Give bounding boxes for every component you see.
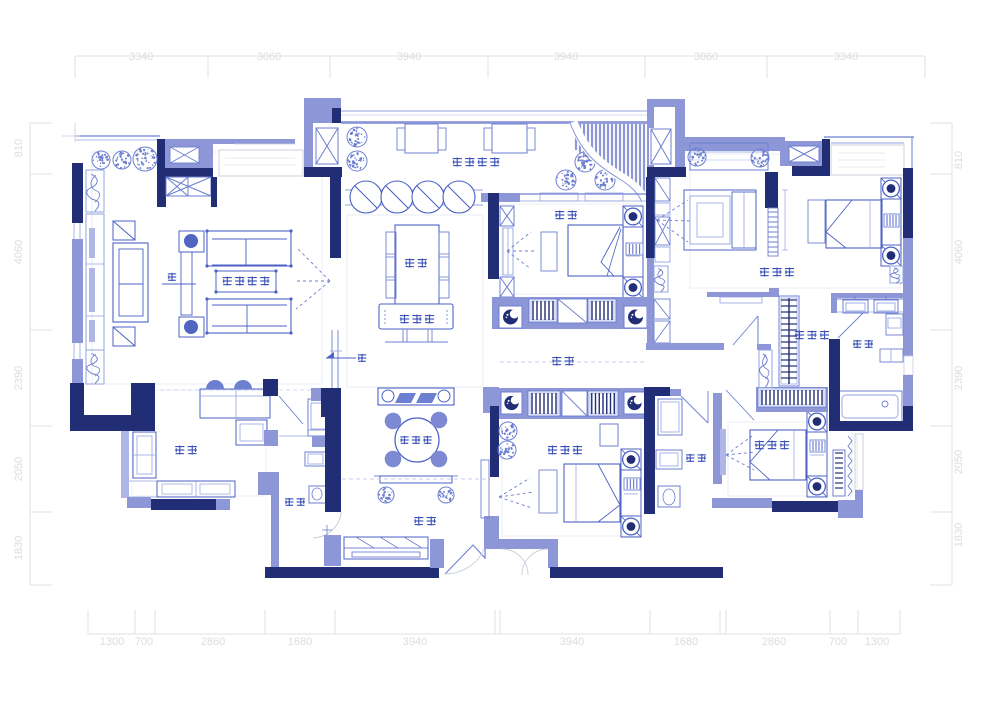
- svg-text:1300: 1300: [100, 636, 124, 648]
- svg-text:2390: 2390: [13, 366, 25, 390]
- svg-text:4060: 4060: [13, 240, 25, 264]
- svg-text:2050: 2050: [13, 457, 25, 481]
- svg-text:700: 700: [135, 636, 153, 648]
- svg-text:2860: 2860: [201, 636, 225, 648]
- svg-text:3060: 3060: [257, 51, 281, 63]
- svg-text:3940: 3940: [403, 636, 427, 648]
- svg-text:3340: 3340: [834, 51, 858, 63]
- svg-text:1680: 1680: [288, 636, 312, 648]
- svg-text:3060: 3060: [694, 51, 718, 63]
- svg-text:810: 810: [953, 151, 965, 169]
- svg-text:2860: 2860: [762, 636, 786, 648]
- svg-text:3940: 3940: [554, 51, 578, 63]
- svg-text:1830: 1830: [953, 523, 965, 547]
- svg-text:4060: 4060: [953, 240, 965, 264]
- svg-text:1300: 1300: [865, 636, 889, 648]
- svg-text:3940: 3940: [560, 636, 584, 648]
- svg-text:2390: 2390: [953, 366, 965, 390]
- svg-text:810: 810: [13, 139, 25, 157]
- svg-text:2050: 2050: [953, 450, 965, 474]
- svg-text:3340: 3340: [129, 51, 153, 63]
- svg-text:700: 700: [829, 636, 847, 648]
- svg-text:1680: 1680: [674, 636, 698, 648]
- svg-text:1830: 1830: [13, 536, 25, 560]
- svg-text:3940: 3940: [397, 51, 421, 63]
